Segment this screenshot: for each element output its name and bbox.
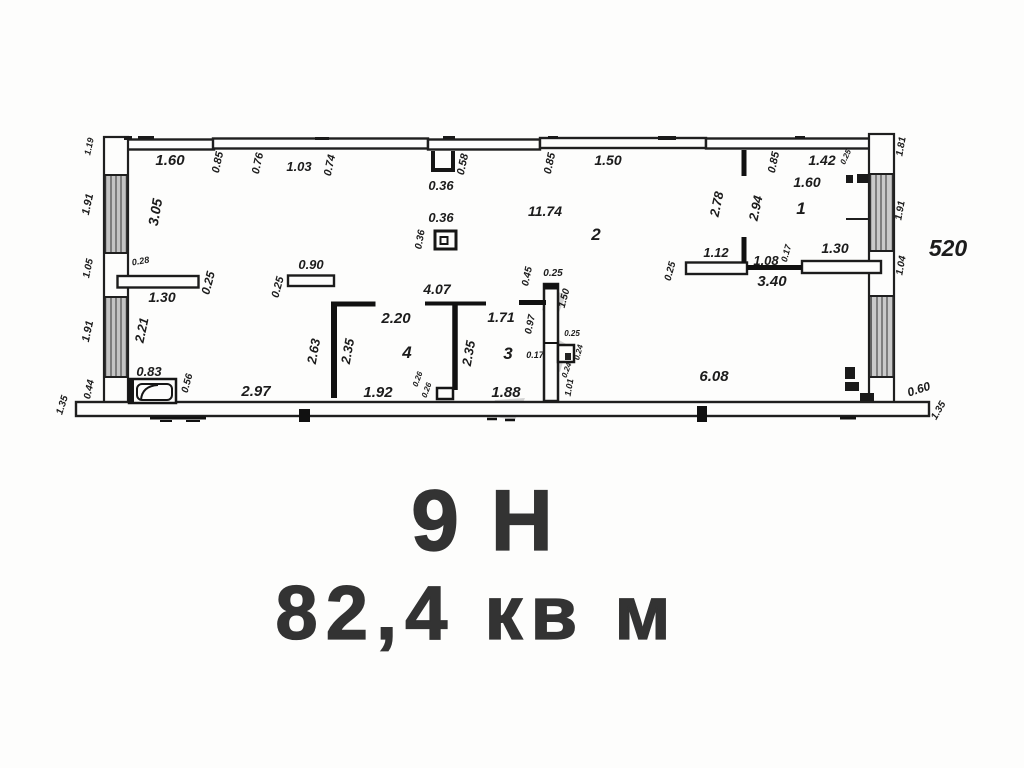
svg-text:1.81: 1.81 — [894, 136, 908, 158]
svg-text:1.08: 1.08 — [753, 253, 779, 268]
svg-text:4: 4 — [401, 343, 412, 362]
svg-text:1.30: 1.30 — [821, 240, 848, 256]
svg-text:1.91: 1.91 — [893, 200, 907, 222]
svg-text:0.85: 0.85 — [210, 150, 226, 174]
svg-text:0.58: 0.58 — [455, 152, 471, 176]
svg-text:1.92: 1.92 — [363, 384, 393, 401]
svg-text:3.05: 3.05 — [145, 197, 166, 227]
svg-text:1.42: 1.42 — [808, 152, 835, 168]
svg-text:0.25: 0.25 — [198, 270, 218, 296]
svg-text:0.83: 0.83 — [136, 364, 162, 379]
svg-text:1.30: 1.30 — [148, 289, 175, 305]
svg-text:0.90: 0.90 — [298, 257, 324, 272]
svg-text:3: 3 — [503, 344, 513, 363]
svg-text:1.05: 1.05 — [81, 257, 96, 279]
svg-text:0.45: 0.45 — [520, 265, 535, 287]
svg-text:1.01: 1.01 — [563, 378, 576, 397]
svg-text:0.25: 0.25 — [663, 260, 679, 282]
svg-text:1.88: 1.88 — [491, 384, 521, 401]
svg-text:11.74: 11.74 — [528, 203, 562, 219]
svg-text:2.35: 2.35 — [459, 339, 478, 368]
svg-text:1.03: 1.03 — [286, 159, 312, 174]
svg-text:0.74: 0.74 — [322, 154, 338, 177]
svg-text:0.25: 0.25 — [564, 329, 580, 338]
svg-text:0.60: 0.60 — [905, 379, 932, 400]
svg-text:0.17: 0.17 — [526, 350, 545, 360]
svg-text:1.60: 1.60 — [155, 152, 185, 169]
svg-text:0.36: 0.36 — [413, 229, 427, 251]
svg-text:0.56: 0.56 — [180, 372, 196, 394]
svg-text:3.40: 3.40 — [757, 273, 787, 290]
svg-text:0.25: 0.25 — [270, 274, 287, 299]
svg-text:0.36: 0.36 — [428, 210, 454, 225]
svg-text:1.12: 1.12 — [703, 245, 729, 260]
svg-text:1.35: 1.35 — [54, 394, 71, 416]
svg-text:2.20: 2.20 — [380, 310, 411, 327]
svg-text:1.04: 1.04 — [894, 255, 908, 277]
svg-text:0.97: 0.97 — [523, 313, 538, 335]
svg-text:6.08: 6.08 — [699, 368, 729, 385]
svg-text:0.25: 0.25 — [543, 268, 563, 279]
svg-text:0.85: 0.85 — [766, 150, 782, 174]
svg-text:1.71: 1.71 — [487, 309, 514, 325]
svg-text:0.25: 0.25 — [838, 147, 853, 165]
svg-text:0.76: 0.76 — [250, 151, 266, 175]
svg-text:2.35: 2.35 — [338, 337, 357, 366]
svg-text:1.50: 1.50 — [594, 152, 621, 168]
svg-text:0.17: 0.17 — [779, 243, 793, 263]
svg-text:2.78: 2.78 — [706, 189, 726, 219]
svg-text:4.07: 4.07 — [422, 281, 451, 297]
svg-text:9 Н: 9 Н — [411, 473, 557, 569]
svg-text:2.97: 2.97 — [240, 383, 271, 400]
svg-text:1.19: 1.19 — [82, 137, 95, 156]
svg-text:0.28: 0.28 — [131, 255, 150, 268]
svg-text:1.91: 1.91 — [80, 193, 96, 216]
svg-text:82,4 кв м: 82,4 кв м — [275, 571, 678, 656]
svg-text:2: 2 — [590, 225, 601, 244]
svg-text:1.35: 1.35 — [929, 399, 948, 422]
svg-text:0.44: 0.44 — [82, 378, 97, 400]
svg-text:2.21: 2.21 — [131, 316, 151, 345]
svg-text:0.26: 0.26 — [420, 381, 434, 399]
svg-text:0.36: 0.36 — [428, 178, 454, 193]
svg-text:1: 1 — [796, 199, 805, 218]
svg-text:2.63: 2.63 — [304, 337, 323, 366]
svg-text:1.91: 1.91 — [80, 320, 96, 343]
svg-text:520: 520 — [929, 235, 968, 261]
svg-text:0.85: 0.85 — [542, 151, 558, 175]
svg-text:1.60: 1.60 — [793, 174, 820, 190]
svg-text:2.94: 2.94 — [745, 193, 765, 223]
